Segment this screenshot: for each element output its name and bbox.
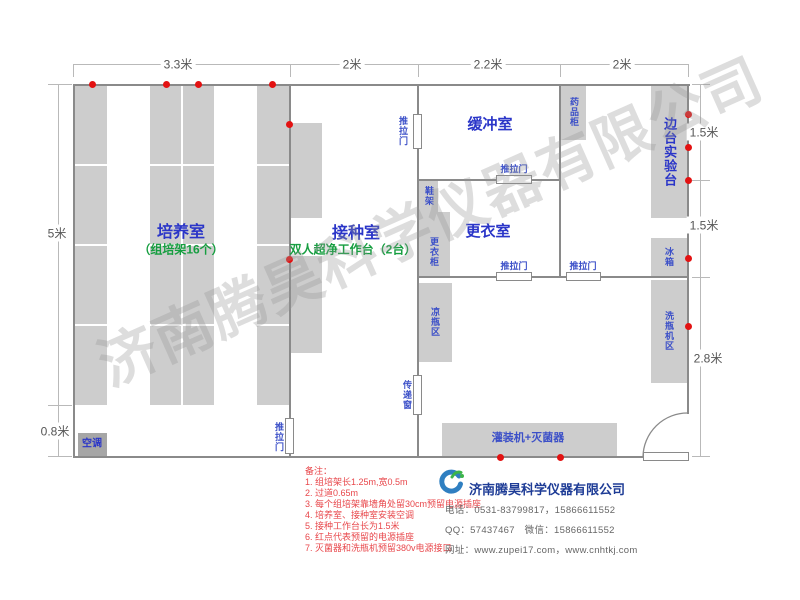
rack-divider bbox=[75, 324, 107, 326]
dim-line-left bbox=[58, 84, 59, 457]
dimension-label: 2米 bbox=[340, 56, 365, 73]
sliding-door-buffer-change bbox=[496, 175, 532, 184]
wall-change-south-2 bbox=[531, 276, 567, 278]
company-phone: 电话：0531-83799817，15866611552 bbox=[445, 502, 615, 516]
power-outlet-dot bbox=[195, 81, 202, 88]
dim-tick bbox=[418, 64, 419, 77]
power-outlet-dot bbox=[163, 81, 170, 88]
power-outlet-dot bbox=[685, 255, 692, 262]
clean-bench-1 bbox=[291, 123, 322, 218]
sliding-door-change-south bbox=[496, 272, 532, 281]
rack-divider bbox=[257, 164, 290, 166]
wall-change-south-3 bbox=[600, 276, 688, 278]
sliding-door-culture-inoculation bbox=[285, 418, 294, 454]
dimension-label: 1.5米 bbox=[687, 217, 722, 234]
floor-plan-canvas: 济南腾昊科学仪器有限公司 培养室（组培架16个）接种室双人超净工作台（2台）缓冲… bbox=[0, 0, 800, 600]
dimension-label: 2米 bbox=[610, 56, 635, 73]
label-sliding-door-5: 推拉门 bbox=[273, 422, 283, 452]
dim-tick bbox=[560, 64, 561, 77]
dim-tick bbox=[290, 64, 291, 77]
clean-bench-2 bbox=[291, 256, 322, 353]
rack-divider bbox=[75, 244, 107, 246]
label-pass-window: 传递窗 bbox=[401, 380, 411, 410]
label-sliding-door-4: 推拉门 bbox=[569, 262, 596, 272]
dim-tick bbox=[48, 84, 72, 85]
power-outlet-dot bbox=[557, 454, 564, 461]
rack-divider bbox=[257, 324, 290, 326]
room-label-culture: 培养室 bbox=[157, 224, 205, 242]
room-label-buffer: 缓冲室 bbox=[467, 117, 512, 134]
dimension-label: 0.8米 bbox=[38, 423, 73, 440]
dim-tick bbox=[692, 456, 710, 457]
dim-tick bbox=[48, 456, 72, 457]
wall-inoculation-east-3 bbox=[417, 413, 419, 458]
dim-tick bbox=[692, 84, 710, 85]
power-outlet-dot bbox=[685, 323, 692, 330]
dim-tick bbox=[692, 277, 710, 278]
room-sublabel-inoculation: 双人超净工作台（2台） bbox=[290, 243, 417, 256]
power-outlet-dot bbox=[685, 144, 692, 151]
wall-buffer-change-2 bbox=[531, 179, 560, 181]
label-bottle-washer: 洗瓶机区 bbox=[663, 311, 673, 351]
dim-tick bbox=[692, 180, 710, 181]
power-outlet-dot bbox=[685, 177, 692, 184]
dimension-label: 1.5米 bbox=[687, 124, 722, 141]
room-sublabel-culture: （组培架16个） bbox=[138, 243, 223, 256]
power-outlet-dot bbox=[286, 121, 293, 128]
company-name: 济南腾昊科学仪器有限公司 bbox=[469, 479, 625, 498]
label-side-bench: 边台实验台 bbox=[662, 117, 676, 187]
wall-buffer-change-1 bbox=[418, 179, 497, 181]
wall-change-south-1 bbox=[418, 276, 497, 278]
label-air-conditioner: 空调 bbox=[82, 439, 102, 450]
label-fridge: 冰箱 bbox=[663, 247, 673, 267]
dimension-label: 3.3米 bbox=[161, 56, 196, 73]
rack-divider bbox=[75, 164, 107, 166]
room-label-changing: 更衣室 bbox=[465, 224, 510, 241]
power-outlet-dot bbox=[685, 111, 692, 118]
dim-tick bbox=[48, 405, 72, 406]
rack-divider bbox=[257, 244, 290, 246]
power-outlet-dot bbox=[269, 81, 276, 88]
wall-inoculation-east-2 bbox=[417, 148, 419, 377]
label-sliding-door-2: 推拉门 bbox=[500, 165, 527, 175]
entry-door-leaf bbox=[643, 452, 689, 461]
label-wardrobe: 更衣柜 bbox=[428, 237, 438, 267]
label-bottle-cooling: 凉瓶区 bbox=[429, 307, 439, 337]
label-medicine-cabinet: 药品柜 bbox=[568, 97, 578, 127]
wall-inoculation-east-1 bbox=[417, 84, 419, 115]
company-qq-wechat: QQ：57437467 微信：15866611552 bbox=[445, 522, 615, 536]
dimension-label: 5米 bbox=[45, 225, 70, 242]
company-logo-icon bbox=[438, 469, 465, 502]
label-filling-sterilizer: 灌装机+灭菌器 bbox=[492, 432, 564, 444]
label-shoe-rack: 鞋架 bbox=[423, 186, 433, 206]
dimension-label: 2.8米 bbox=[691, 350, 726, 367]
power-outlet-dot bbox=[89, 81, 96, 88]
company-website: 网址：www.zupei17.com，www.cnhtkj.com bbox=[445, 542, 638, 556]
sliding-door-east-south bbox=[566, 272, 601, 281]
sliding-door-inoculation-buffer bbox=[413, 114, 422, 149]
dimension-label: 2.2米 bbox=[471, 56, 506, 73]
label-sliding-door-1: 推拉门 bbox=[397, 116, 407, 146]
label-sliding-door-3: 推拉门 bbox=[500, 262, 527, 272]
dim-tick bbox=[73, 64, 74, 77]
room-label-inoculation: 接种室 bbox=[332, 225, 380, 243]
pass-window bbox=[413, 375, 422, 415]
wall-buffer-east bbox=[559, 84, 561, 278]
wall-left bbox=[73, 84, 75, 458]
power-outlet-dot bbox=[497, 454, 504, 461]
dim-tick bbox=[688, 64, 689, 77]
